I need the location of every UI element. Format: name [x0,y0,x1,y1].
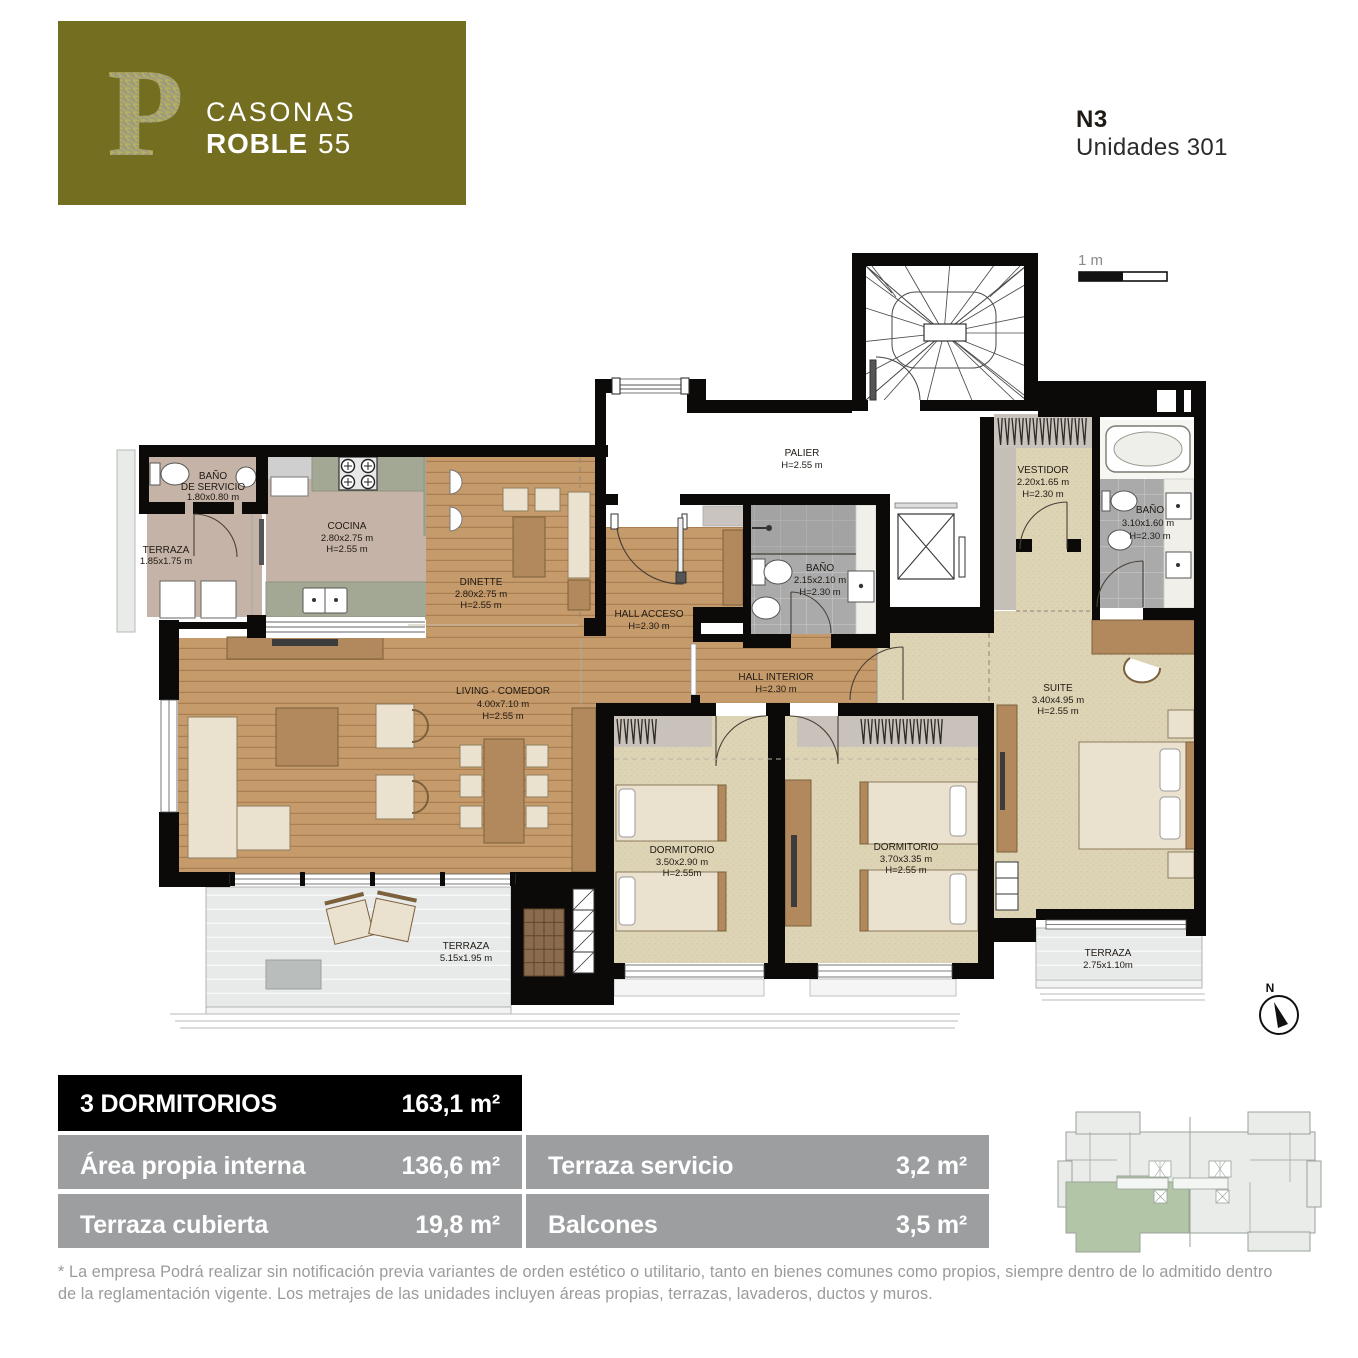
svg-text:2.75x1.10m: 2.75x1.10m [1083,960,1133,971]
svg-text:3.10x1.60 m: 3.10x1.60 m [1122,518,1174,529]
svg-text:HALL INTERIOR: HALL INTERIOR [738,672,813,683]
svg-text:P: P [107,44,184,183]
svg-text:3.50x2.90 m: 3.50x2.90 m [656,857,708,868]
svg-text:H=2.55 m: H=2.55 m [1037,706,1079,717]
svg-text:1.80x0.80 m: 1.80x0.80 m [187,492,239,503]
svg-text:3,5 m²: 3,5 m² [896,1211,967,1239]
svg-text:HALL ACCESO: HALL ACCESO [614,609,683,620]
svg-text:Balcones: Balcones [548,1211,658,1239]
svg-text:VESTIDOR: VESTIDOR [1017,465,1068,476]
svg-text:H=2.55m: H=2.55m [663,868,702,879]
svg-text:H=2.55 m: H=2.55 m [460,600,502,611]
svg-text:H=2.55 m: H=2.55 m [326,544,368,555]
svg-text:H=2.30 m: H=2.30 m [1129,531,1171,542]
svg-text:H=2.55 m: H=2.55 m [885,865,927,876]
svg-text:TERRAZA: TERRAZA [1085,948,1132,959]
svg-text:136,6 m²: 136,6 m² [402,1152,500,1180]
svg-text:55: 55 [318,128,351,159]
svg-text:2.15x2.10 m: 2.15x2.10 m [794,575,846,586]
svg-text:N: N [1266,981,1275,995]
svg-text:BAÑO: BAÑO [806,561,835,574]
svg-text:H=2.55 m: H=2.55 m [781,460,823,471]
svg-text:H=2.30 m: H=2.30 m [799,587,841,598]
svg-text:19,8 m²: 19,8 m² [415,1211,500,1239]
svg-text:3.40x4.95 m: 3.40x4.95 m [1032,695,1084,706]
svg-text:5.15x1.95 m: 5.15x1.95 m [440,953,492,964]
svg-text:H=2.30 m: H=2.30 m [628,621,670,632]
svg-text:BAÑO: BAÑO [199,469,228,482]
svg-text:2.20x1.65 m: 2.20x1.65 m [1017,477,1069,488]
svg-text:COCINA: COCINA [328,521,367,532]
svg-text:DINETTE: DINETTE [460,577,503,588]
svg-text:ROBLE: ROBLE [206,128,308,159]
svg-text:1 m: 1 m [1078,252,1103,269]
svg-text:PALIER: PALIER [785,448,820,459]
svg-text:163,1 m²: 163,1 m² [402,1090,500,1118]
svg-text:H=2.30 m: H=2.30 m [755,684,797,695]
svg-text:2.80x2.75 m: 2.80x2.75 m [455,589,507,600]
svg-text:Terraza servicio: Terraza servicio [548,1152,733,1180]
svg-text:TERRAZA: TERRAZA [143,545,190,556]
svg-text:Terraza cubierta: Terraza cubierta [80,1211,269,1239]
svg-text:de la reglamentación vigente.: de la reglamentación vigente. Los metraj… [58,1285,933,1303]
svg-text:1.85x1.75 m: 1.85x1.75 m [140,556,192,567]
svg-text:TERRAZA: TERRAZA [443,941,490,952]
svg-text:H=2.55 m: H=2.55 m [482,711,524,722]
svg-text:* La empresa Podrá realizar si: * La empresa Podrá realizar sin notifica… [58,1263,1272,1281]
svg-text:3 DORMITORIOS: 3 DORMITORIOS [80,1090,277,1118]
svg-text:LIVING - COMEDOR: LIVING - COMEDOR [456,686,550,697]
svg-text:SUITE: SUITE [1043,683,1073,694]
svg-text:Área propia interna: Área propia interna [80,1151,307,1180]
svg-text:DORMITORIO: DORMITORIO [874,842,939,853]
svg-text:4.00x7.10 m: 4.00x7.10 m [477,699,529,710]
svg-text:Unidades 301: Unidades 301 [1076,134,1228,161]
svg-text:BAÑO: BAÑO [1136,503,1165,516]
svg-text:DORMITORIO: DORMITORIO [650,845,715,856]
svg-text:2.80x2.75 m: 2.80x2.75 m [321,533,373,544]
svg-text:3,2 m²: 3,2 m² [896,1152,967,1180]
svg-text:CASONAS: CASONAS [206,97,356,127]
svg-text:N3: N3 [1076,106,1108,133]
svg-text:H=2.30 m: H=2.30 m [1022,489,1064,500]
svg-text:3.70x3.35 m: 3.70x3.35 m [880,854,932,865]
